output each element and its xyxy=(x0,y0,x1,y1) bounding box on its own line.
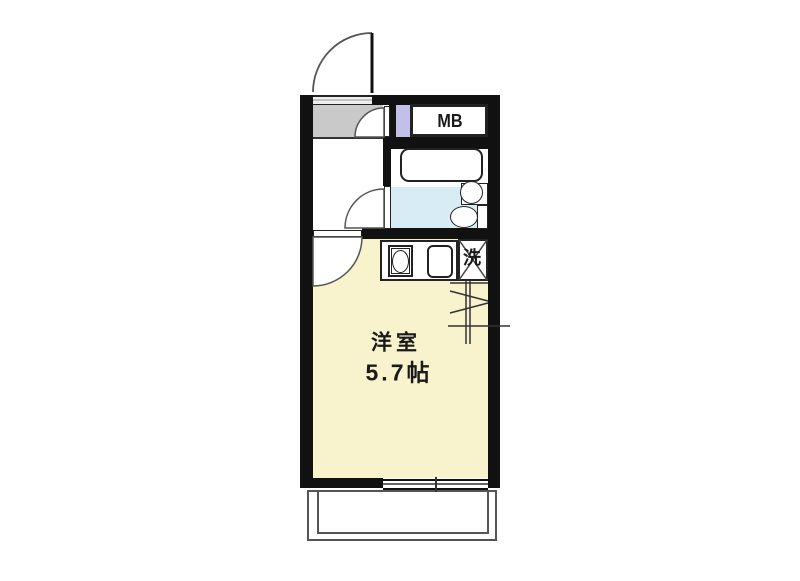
wash-basin-bowl xyxy=(460,181,483,204)
wall-bottom xyxy=(300,478,383,488)
laundry-label: 洗 xyxy=(463,249,481,267)
entrance-inner-door-leaf xyxy=(384,106,390,137)
hallway-floor xyxy=(313,139,383,230)
bathtub xyxy=(400,148,483,182)
bathroom-door-leaf xyxy=(384,186,391,229)
wall-room-top xyxy=(362,228,488,239)
wall-right xyxy=(488,95,500,488)
pipe-space xyxy=(396,104,410,137)
balcony-inner-rail xyxy=(317,490,489,534)
room-size-label: 5.7帖 xyxy=(366,362,433,385)
window xyxy=(383,479,488,490)
entrance-floor xyxy=(313,105,383,139)
meter-box-label: MB xyxy=(437,112,462,130)
room-name-label: 洋室 xyxy=(371,333,421,354)
toilet-bowl xyxy=(450,206,478,228)
wall-bath-left xyxy=(383,149,391,186)
wall-left xyxy=(300,95,313,488)
floor-plan: MB 洗 洋室 5.7帖 xyxy=(0,0,800,581)
stove-burner xyxy=(392,250,409,273)
room-door-leaf xyxy=(313,230,362,237)
kitchen-sink xyxy=(427,245,453,278)
toilet-tank xyxy=(477,205,488,229)
entrance-door-arc xyxy=(313,33,372,92)
